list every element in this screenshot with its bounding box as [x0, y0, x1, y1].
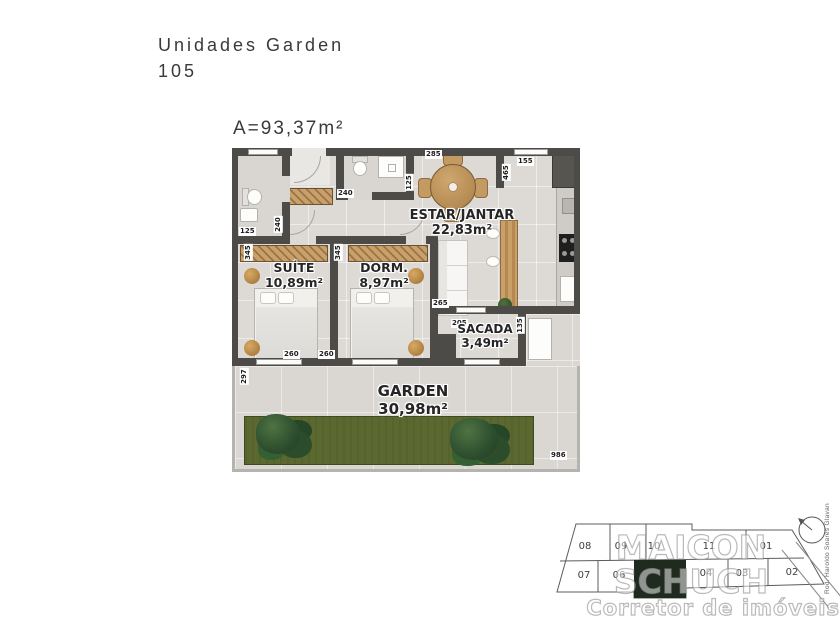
pillow	[374, 292, 390, 304]
wall	[574, 148, 580, 310]
dimension-label: 260	[283, 350, 300, 359]
wall	[232, 236, 290, 244]
pillar	[432, 334, 456, 360]
dimension-label: 986	[550, 451, 567, 460]
window	[514, 149, 548, 155]
door-opening	[282, 176, 290, 202]
room-name: SUÍTE	[265, 260, 323, 275]
shower-box	[378, 156, 404, 178]
dimension-label: 345	[244, 244, 253, 261]
unit-number: 01	[760, 541, 773, 552]
room-label-dorm: DORM. 8,97m²	[359, 260, 408, 290]
window	[248, 149, 278, 155]
wall	[316, 236, 406, 244]
title-line2: 105	[158, 58, 344, 84]
highlighted-unit-cell	[634, 560, 686, 598]
dimension-label: 125	[405, 174, 414, 191]
wall	[330, 244, 338, 366]
room-area: 3,49m²	[457, 336, 512, 350]
dorm-bed	[350, 288, 414, 362]
dimension-label: 465	[502, 164, 511, 181]
dimension-label: 260	[318, 350, 335, 359]
room-area: 30,98m²	[378, 400, 449, 418]
dimension-label: 345	[334, 244, 343, 261]
building-key-plan: 08 09 10 11 01 07 06 04 03 02	[546, 512, 840, 612]
wall	[232, 148, 238, 366]
unit-number: 09	[615, 541, 628, 552]
room-label-garden: GARDEN 30,98m²	[378, 382, 449, 418]
unit-number: 07	[578, 570, 591, 581]
dimension-label: 155	[517, 157, 534, 166]
room-name: DORM.	[359, 260, 408, 275]
pillow	[356, 292, 372, 304]
room-label-sacada: SACADA 3,49m²	[457, 322, 512, 350]
room-name: ESTAR/JANTAR	[410, 208, 515, 223]
dimension-label: 135	[516, 317, 525, 334]
dorm-pouf-top	[408, 268, 424, 284]
dorm-pouf-bottom	[408, 340, 424, 356]
entry-door-opening	[292, 148, 326, 156]
hall-closet	[288, 188, 333, 205]
compass-icon	[798, 517, 825, 543]
pillow	[278, 292, 294, 304]
toilet-bowl	[353, 161, 367, 176]
unit-number: 10	[648, 541, 661, 552]
dimension-label: 240	[337, 189, 354, 198]
room-name: SACADA	[457, 322, 512, 336]
pillow	[260, 292, 276, 304]
room-label-estar: ESTAR/JANTAR 22,83m²	[410, 208, 515, 238]
garden-bush-left	[256, 414, 300, 454]
dimension-label: 125	[239, 227, 256, 236]
wall	[518, 306, 526, 366]
wall	[430, 306, 580, 314]
unit-number: 02	[786, 567, 799, 578]
unit-number: 03	[736, 568, 749, 579]
toilet-bowl	[247, 189, 262, 205]
total-area-label: A=93,37m²	[233, 118, 344, 140]
title-line1: Unidades Garden	[158, 32, 344, 58]
suite-pouf-bottom	[244, 340, 260, 356]
dimension-label: 240	[274, 216, 283, 233]
island-stool	[486, 256, 500, 267]
unit-number: 06	[613, 570, 626, 581]
shower-drain	[388, 164, 396, 172]
burner	[562, 251, 567, 256]
sofa-cushion-line	[447, 290, 467, 291]
sacada-front-window	[464, 359, 500, 365]
unit-number: 04	[700, 568, 713, 579]
unit-number: 11	[703, 541, 716, 552]
room-area: 8,97m²	[359, 275, 408, 290]
dining-table-center	[448, 182, 458, 192]
dining-chair	[474, 178, 488, 198]
suite-garden-door	[256, 359, 302, 365]
room-area: 10,89m²	[265, 275, 323, 290]
dorm-garden-door	[352, 359, 398, 365]
room-area: 22,83m²	[410, 223, 515, 238]
blanket	[352, 307, 413, 361]
dimension-label: 297	[240, 368, 249, 385]
burner	[562, 238, 567, 243]
room-label-suite: SUÍTE 10,89m²	[265, 260, 323, 290]
sofa-cushion-line	[447, 265, 467, 266]
bathroom-sink	[240, 208, 258, 222]
dimension-label: 285	[425, 150, 442, 159]
sacada-bench	[528, 318, 552, 360]
room-name: GARDEN	[378, 382, 449, 400]
floor-plan: 285 465 155 240 125 125 240 345 345 265 …	[232, 148, 580, 472]
dimension-label: 265	[432, 299, 449, 308]
sacada-sliding-door	[456, 307, 486, 313]
page-title: Unidades Garden 105	[158, 32, 344, 84]
garden-bush-right	[450, 418, 498, 460]
unit-number: 08	[579, 541, 592, 552]
suite-pouf-top	[244, 268, 260, 284]
road-label: Rod. Haroldo Soares Glavan	[824, 503, 831, 594]
